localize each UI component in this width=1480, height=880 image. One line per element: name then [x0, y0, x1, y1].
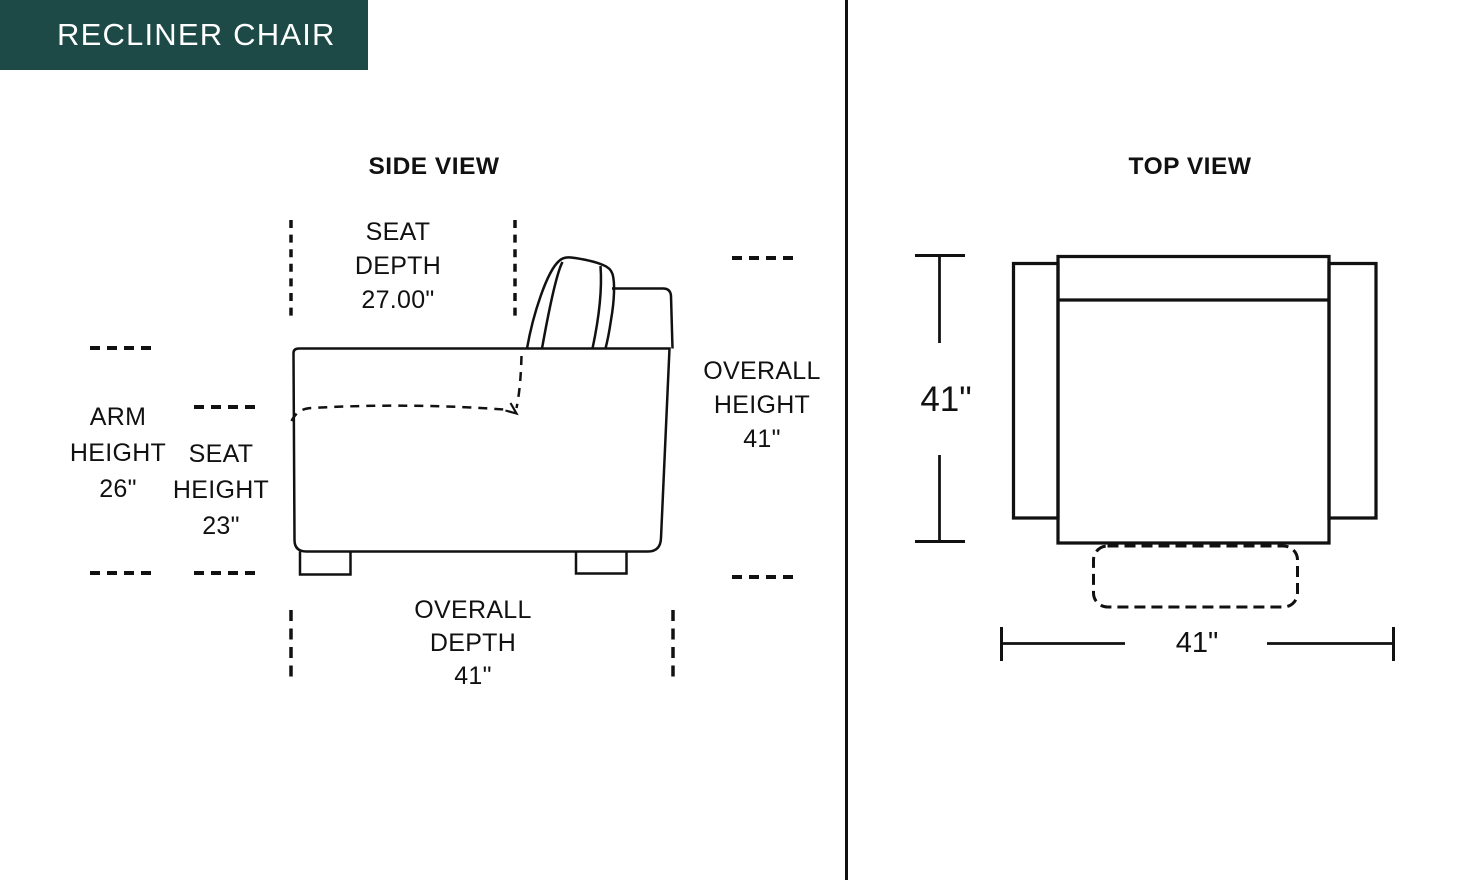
- top-view-title: TOP VIEW: [1129, 153, 1252, 181]
- label-line: HEIGHT: [173, 472, 269, 508]
- header-box: RECLINER CHAIR: [0, 0, 368, 70]
- top-armrest-right: [1329, 264, 1376, 519]
- top-armrest-left: [1014, 264, 1059, 519]
- label-line: 27.00": [361, 283, 434, 317]
- seat-arrowhead: [506, 403, 517, 414]
- dimension-diagram-page: RECLINER CHAIR SIDE VIEW SEAT DEPTH 27.0…: [0, 0, 1480, 880]
- seat-depth-label: SEAT DEPTH 27.00": [355, 215, 441, 317]
- overall-depth-label: OVERALL DEPTH 41": [414, 594, 531, 693]
- label-line: HEIGHT: [714, 388, 810, 422]
- top-footrest-dashed: [1094, 546, 1298, 607]
- side-body: [294, 349, 670, 552]
- recliner-top-drawing: [1014, 257, 1377, 608]
- page-title: RECLINER CHAIR: [57, 17, 336, 53]
- label-line: OVERALL: [703, 354, 820, 388]
- overall-height-label: OVERALL HEIGHT 41": [703, 354, 820, 456]
- side-backrest-piping: [593, 266, 601, 349]
- label-line: ARM: [90, 399, 146, 435]
- label-line: OVERALL: [414, 594, 531, 627]
- label-line: DEPTH: [430, 627, 516, 660]
- top-view-height-value: 41": [920, 381, 971, 419]
- seat-height-label: SEAT HEIGHT 23": [173, 436, 269, 544]
- side-back-panel: [612, 289, 673, 349]
- seat-contour-dashed: [292, 406, 505, 421]
- label-line: SEAT: [366, 215, 431, 249]
- top-dimension-lines: [915, 256, 1394, 662]
- label-line: HEIGHT: [70, 435, 166, 471]
- side-foot-right: [576, 552, 627, 574]
- side-foot-left: [300, 552, 351, 575]
- label-line: DEPTH: [355, 249, 441, 283]
- label-line: 26": [99, 471, 137, 507]
- label-line: 23": [202, 508, 240, 544]
- recliner-side-drawing: [292, 257, 673, 574]
- side-backrest-inner-left: [542, 262, 563, 349]
- arm-height-label: ARM HEIGHT 26": [70, 399, 166, 507]
- label-line: SEAT: [189, 436, 254, 472]
- side-view-title: SIDE VIEW: [368, 153, 499, 181]
- top-view-width-value: 41": [1176, 627, 1219, 659]
- label-line: 41": [454, 660, 492, 693]
- seat-drop-dashed: [517, 356, 522, 408]
- label-line: 41": [743, 422, 781, 456]
